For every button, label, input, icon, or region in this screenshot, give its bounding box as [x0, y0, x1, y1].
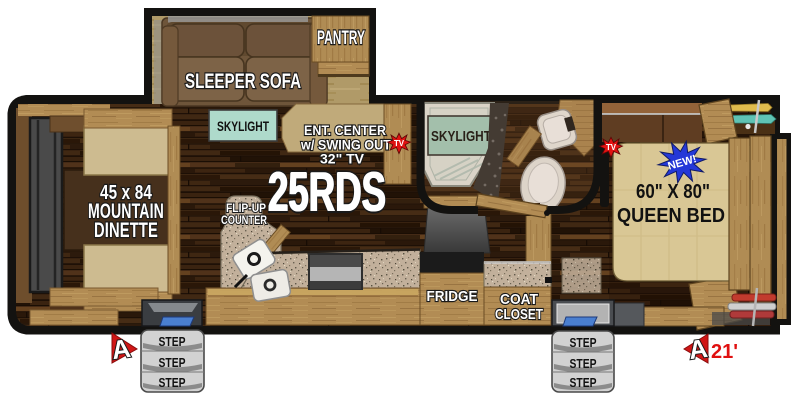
svg-text:STEP: STEP [159, 376, 186, 390]
svg-text:TV: TV [606, 143, 617, 152]
svg-text:TV: TV [394, 139, 405, 148]
svg-text:SLEEPER SOFA: SLEEPER SOFA [185, 70, 301, 93]
svg-text:QUEEN BED: QUEEN BED [617, 204, 725, 227]
svg-text:STEP: STEP [159, 335, 186, 349]
svg-text:CLOSET: CLOSET [495, 307, 543, 323]
svg-text:FRIDGE: FRIDGE [427, 289, 478, 305]
svg-text:STEP: STEP [570, 336, 597, 350]
svg-text:25RDS: 25RDS [268, 159, 386, 222]
svg-text:21': 21' [711, 341, 738, 363]
svg-text:STEP: STEP [570, 376, 597, 390]
svg-text:COAT: COAT [500, 292, 538, 308]
svg-text:STEP: STEP [159, 356, 186, 370]
svg-text:COUNTER: COUNTER [221, 213, 267, 227]
svg-text:PANTRY: PANTRY [317, 28, 365, 49]
svg-text:DINETTE: DINETTE [94, 219, 158, 242]
svg-text:STEP: STEP [570, 357, 597, 371]
svg-text:SKYLIGHT: SKYLIGHT [217, 118, 269, 134]
svg-text:60" X 80": 60" X 80" [636, 181, 710, 203]
